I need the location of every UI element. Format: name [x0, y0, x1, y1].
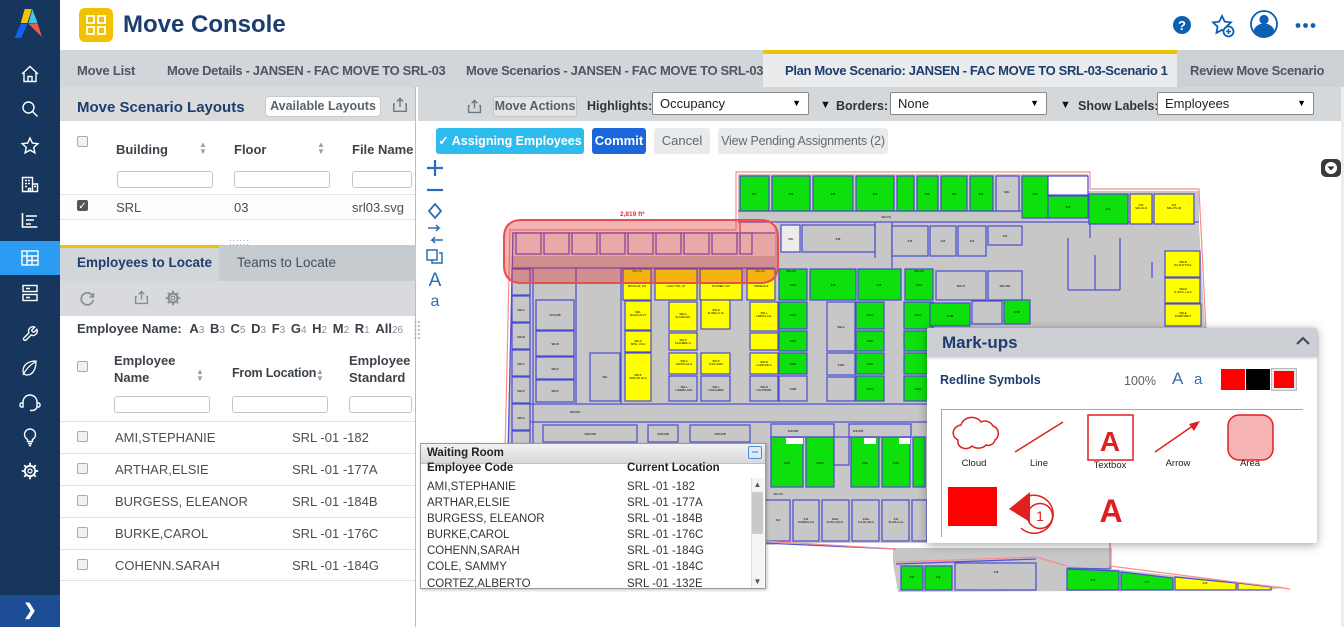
svg-text:Textbox: Textbox [1094, 460, 1127, 471]
svg-text:A: A [1100, 426, 1120, 457]
svg-text:SRL-PN: SRL-PN [786, 269, 796, 273]
svg-text:Area: Area [1240, 458, 1261, 469]
svg-text:SRL-PN: SRL-PN [773, 492, 783, 496]
svg-text:344G: 344G [867, 387, 874, 391]
svg-text:1: 1 [1036, 508, 1044, 524]
svg-text:318: 318 [1066, 205, 1071, 209]
svg-text:SRL: SRL [602, 375, 608, 379]
svg-text:SRLP: SRLP [551, 367, 558, 371]
svg-text:303CWB: 303CWB [853, 429, 864, 433]
svg-text:303: 303 [925, 192, 930, 196]
svg-text:SRLB: SRLB [517, 335, 524, 339]
svg-text:344P: 344P [790, 362, 797, 366]
svg-text:SRL03A: SRL03A [570, 410, 581, 414]
svg-text:SRL3AR: SRL3AR [1000, 284, 1011, 288]
svg-text:SRLB: SRLB [551, 342, 558, 346]
svg-text:SRL-PN: SRL-PN [914, 269, 924, 273]
svg-text:344K: 344K [893, 461, 900, 465]
svg-text:318: 318 [994, 570, 999, 574]
svg-text:344P: 344P [867, 362, 874, 366]
svg-text:306: 306 [789, 192, 794, 196]
svg-text:344: 344 [910, 575, 915, 579]
svg-text:304: 304 [873, 192, 878, 196]
svg-text:373P: 373P [1014, 310, 1021, 314]
svg-text:346: 346 [831, 283, 836, 287]
svg-text:344J: 344J [784, 461, 791, 465]
svg-text:344D: 344D [915, 387, 922, 391]
svg-text:303CWB: 303CWB [788, 429, 799, 433]
svg-text:Arrow: Arrow [1166, 458, 1191, 469]
svg-text:Cloud: Cloud [962, 458, 987, 469]
svg-text:302: 302 [952, 192, 957, 196]
svg-text:344L: 344L [862, 461, 869, 465]
svg-text:300: 300 [1033, 192, 1038, 196]
svg-text:2,819 ft²: 2,819 ft² [620, 211, 645, 218]
svg-text:344A: 344A [790, 283, 797, 287]
svg-text:344F: 344F [790, 339, 797, 343]
svg-text:344G: 344G [790, 313, 797, 317]
svg-text:SRL: SRL [788, 237, 794, 241]
svg-text:344F: 344F [867, 339, 874, 343]
svg-text:SRLP: SRLP [551, 389, 558, 393]
svg-text:317: 317 [1145, 580, 1150, 584]
svg-text:345: 345 [877, 283, 882, 287]
svg-text:303CWB: 303CWB [714, 432, 725, 436]
svg-text:314: 314 [1091, 578, 1096, 582]
svg-text:A: A [1099, 493, 1122, 529]
svg-text:307: 307 [752, 192, 757, 196]
svg-text:SRLG: SRLG [517, 416, 525, 420]
svg-text:343: 343 [970, 239, 975, 243]
svg-text:SRL3T: SRL3T [957, 284, 966, 288]
svg-text:?: ? [1178, 18, 1186, 33]
svg-text:344A: 344A [916, 283, 923, 287]
svg-text:373B: 373B [947, 314, 954, 318]
svg-text:SRLP: SRLP [517, 389, 524, 393]
svg-text:301: 301 [979, 192, 984, 196]
svg-text:Line: Line [1030, 458, 1048, 469]
svg-text:344G: 344G [867, 313, 874, 317]
svg-text:305: 305 [831, 192, 836, 196]
svg-text:344M: 344M [817, 461, 825, 465]
svg-text:SRLA: SRLA [837, 325, 844, 329]
svg-text:344: 344 [776, 518, 781, 522]
svg-text:SRL: SRL [1004, 190, 1010, 194]
svg-text:318: 318 [1203, 581, 1208, 585]
svg-text:SRL-PN: SRL-PN [881, 215, 891, 219]
svg-text:SRLF: SRLF [517, 362, 524, 366]
svg-text:344G: 344G [915, 313, 922, 317]
svg-text:344: 344 [941, 239, 946, 243]
svg-text:342: 342 [1003, 234, 1008, 238]
svg-text:344R: 344R [838, 363, 845, 367]
svg-text:346: 346 [936, 575, 941, 579]
svg-text:307CWB: 307CWB [549, 313, 560, 317]
svg-text:303CWB: 303CWB [584, 432, 595, 436]
svg-text:SRLA: SRLA [517, 308, 524, 312]
svg-text:319: 319 [1106, 207, 1111, 211]
svg-text:344B: 344B [790, 387, 797, 391]
svg-text:345: 345 [908, 239, 913, 243]
svg-text:348: 348 [836, 237, 841, 241]
svg-text:303CWB: 303CWB [657, 432, 668, 436]
